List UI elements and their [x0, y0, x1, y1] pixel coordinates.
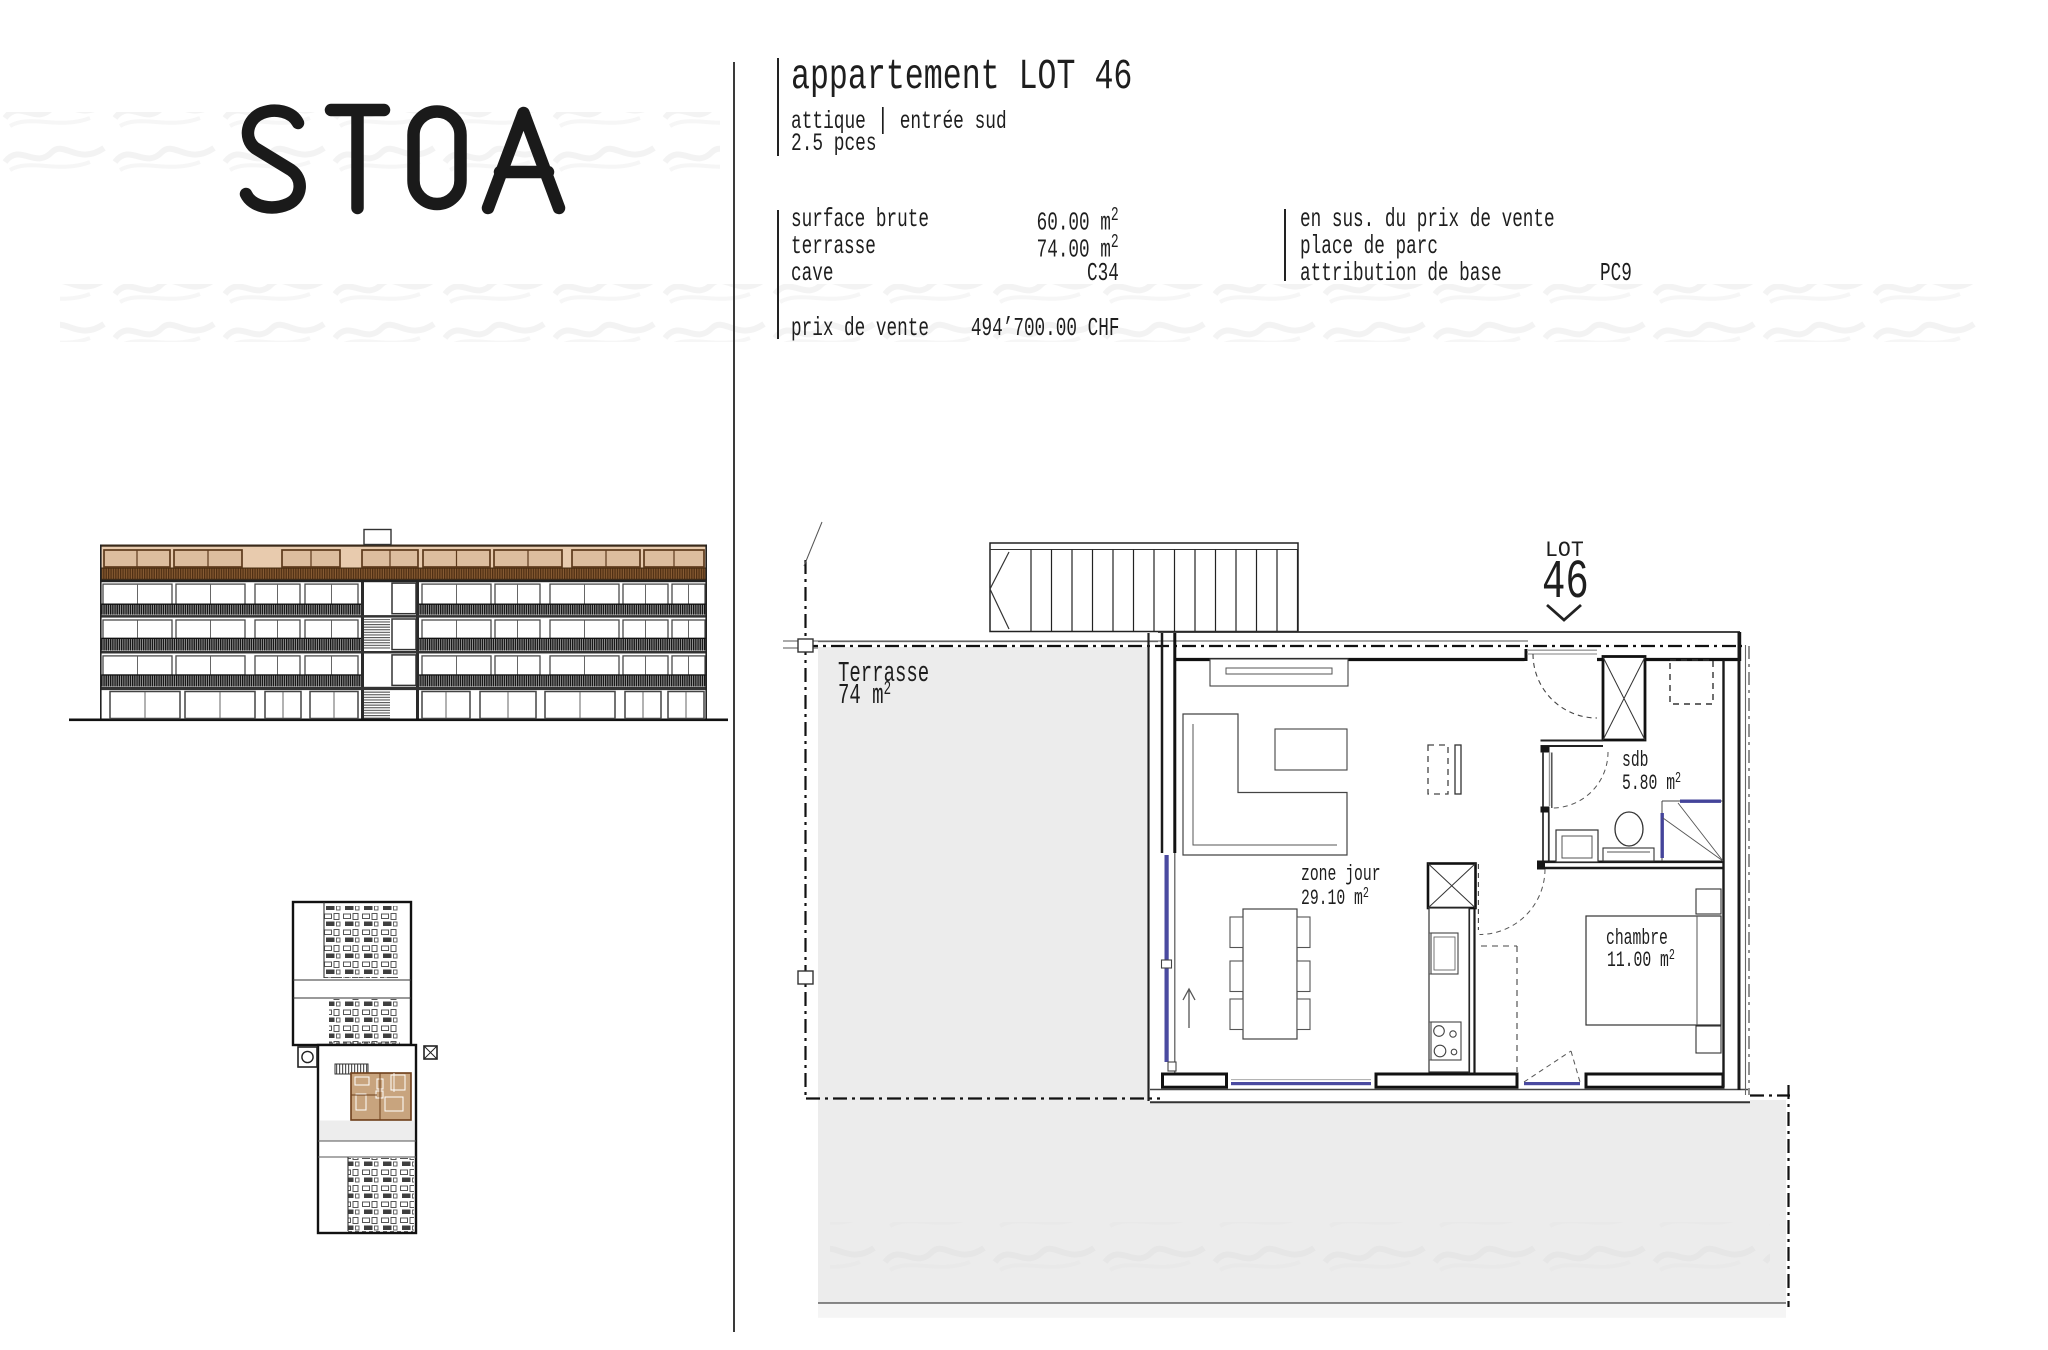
svg-text:74 m2: 74 m2 [838, 679, 891, 713]
svg-text:sdb: sdb [1622, 747, 1649, 773]
svg-text:11.00 m2: 11.00 m2 [1607, 946, 1675, 973]
svg-text:29.10 m2: 29.10 m2 [1301, 884, 1369, 911]
svg-text:5.80 m2: 5.80 m2 [1622, 769, 1681, 796]
